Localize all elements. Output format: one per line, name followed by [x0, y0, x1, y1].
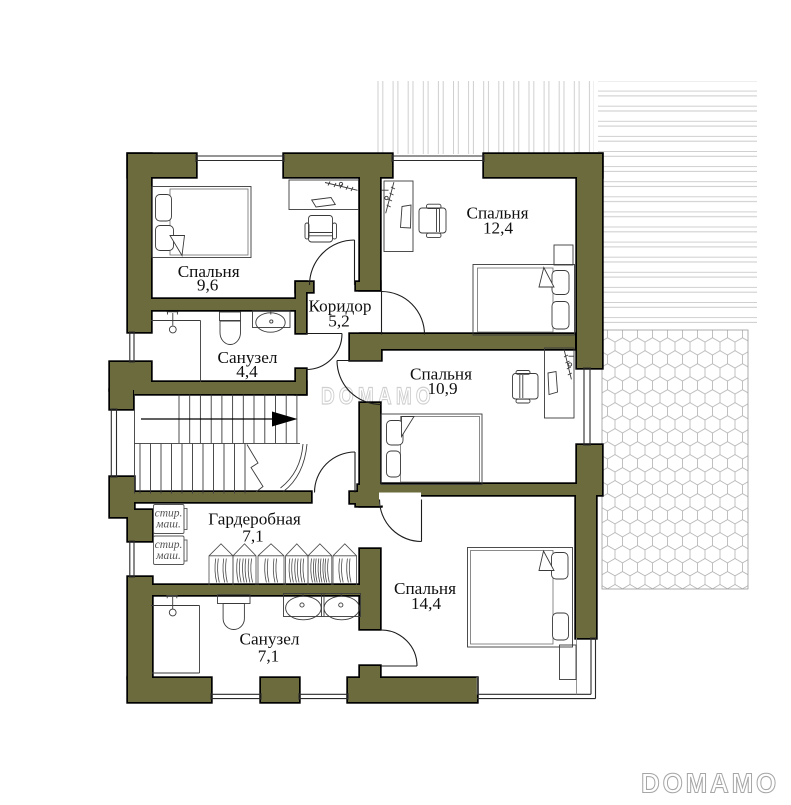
svg-text:10,9: 10,9: [427, 379, 457, 398]
svg-text:маш.: маш.: [155, 519, 181, 531]
svg-text:4,4: 4,4: [236, 362, 258, 381]
svg-text:DOMAMO: DOMAMO: [641, 768, 779, 799]
svg-text:маш.: маш.: [155, 550, 181, 562]
svg-text:7,1: 7,1: [258, 646, 279, 665]
svg-text:7,1: 7,1: [242, 526, 263, 545]
svg-text:12,4: 12,4: [483, 218, 513, 237]
svg-text:9,6: 9,6: [197, 276, 219, 295]
svg-text:5,2: 5,2: [328, 311, 349, 330]
svg-text:14,4: 14,4: [411, 594, 441, 613]
